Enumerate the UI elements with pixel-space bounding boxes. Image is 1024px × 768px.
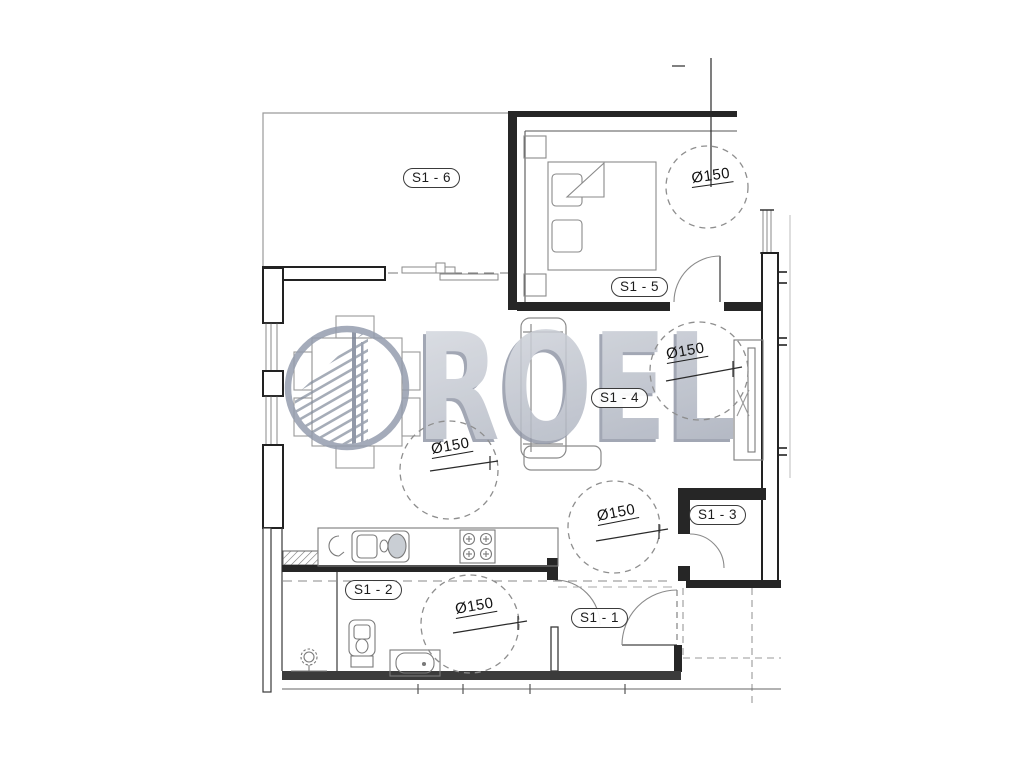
terrace-outline xyxy=(263,113,508,267)
roel-logo-emblem xyxy=(288,298,406,485)
nightstand xyxy=(524,274,546,296)
window-right xyxy=(760,210,774,253)
roel-watermark: ROEL ROEL xyxy=(288,298,736,485)
room-label-s1-2: S1 - 2 xyxy=(345,580,402,600)
leader-bathroom xyxy=(453,616,527,633)
room-label-s1-6: S1 - 6 xyxy=(403,168,460,188)
entry-corridor xyxy=(622,580,781,705)
wardrobe xyxy=(734,340,763,460)
leader-corridor xyxy=(596,524,668,541)
floor-plan-page: ROEL ROEL xyxy=(0,0,1024,768)
window-left-2 xyxy=(264,396,280,445)
outside-dashed-lines xyxy=(683,588,781,705)
left-exterior-wall xyxy=(263,268,318,692)
bed-group xyxy=(524,136,656,296)
cabinet-swing-symbol xyxy=(329,536,339,556)
kitchen-counter xyxy=(318,528,558,566)
closet-walls xyxy=(678,488,766,581)
blanket-fold xyxy=(567,163,604,197)
bedroom-door xyxy=(674,256,720,302)
kitchen-sink xyxy=(352,531,409,562)
turning-circle-bathroom xyxy=(421,575,519,673)
step-hatch xyxy=(283,551,318,565)
turning-circle-corridor xyxy=(568,481,660,573)
turning-circle-bedroom xyxy=(666,146,748,228)
terrace-bottom-wall xyxy=(263,263,508,280)
floor-plan-drawing: ROEL ROEL xyxy=(0,0,1024,768)
room-label-s1-1: S1 - 1 xyxy=(571,608,628,628)
bottom-exterior-wall xyxy=(282,671,781,694)
toilet xyxy=(349,620,375,667)
pillow xyxy=(552,220,582,252)
nightstand xyxy=(524,136,546,158)
stove xyxy=(460,530,495,563)
window-left-1 xyxy=(264,323,280,371)
right-wall-ticks xyxy=(778,272,787,455)
floor-drain-fixture xyxy=(291,649,327,671)
closet-door-arc xyxy=(690,534,724,568)
right-exterior-wall xyxy=(760,210,790,582)
entry-door-arc xyxy=(622,590,677,645)
room-label-s1-4: S1 - 4 xyxy=(591,388,648,408)
room-label-s1-5: S1 - 5 xyxy=(611,277,668,297)
room-label-s1-3: S1 - 3 xyxy=(689,505,746,525)
